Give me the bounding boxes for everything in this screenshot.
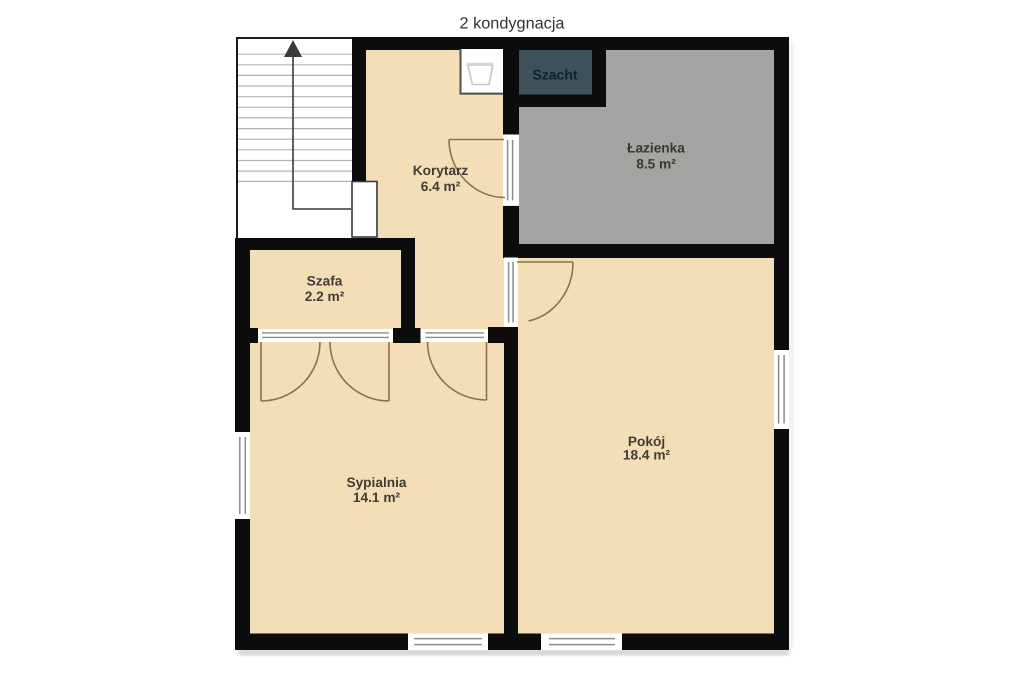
svg-text:Szafa: Szafa	[307, 274, 343, 289]
svg-text:14.1 m²: 14.1 m²	[353, 490, 401, 505]
svg-text:Korytarz: Korytarz	[413, 163, 469, 178]
svg-text:18.4 m²: 18.4 m²	[623, 448, 671, 463]
svg-text:Łazienka: Łazienka	[627, 141, 685, 156]
svg-text:2.2 m²: 2.2 m²	[305, 289, 345, 304]
svg-text:Sypialnia: Sypialnia	[346, 475, 406, 490]
svg-text:8.5 m²: 8.5 m²	[636, 156, 676, 171]
svg-text:6.4 m²: 6.4 m²	[421, 179, 461, 194]
svg-text:2 kondygnacja: 2 kondygnacja	[459, 15, 565, 33]
svg-text:Szacht: Szacht	[532, 67, 577, 83]
